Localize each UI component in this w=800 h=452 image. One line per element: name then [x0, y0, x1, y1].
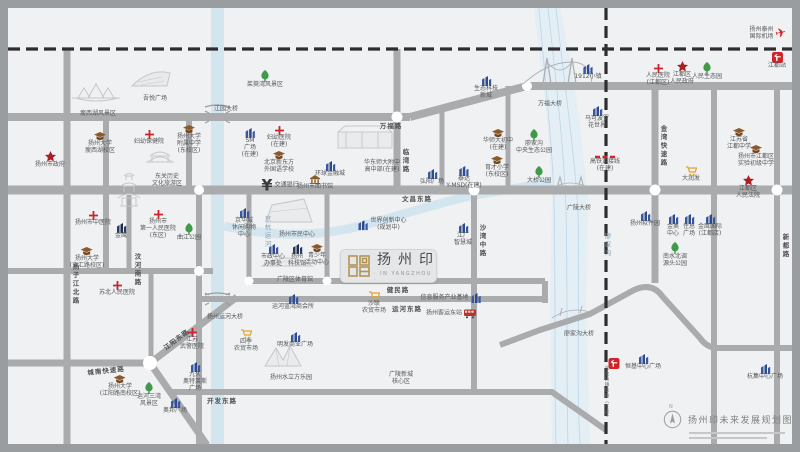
- poi-malldark: 金鹰: [115, 223, 127, 240]
- poi-label: 华东师大附中高中部(在建): [364, 160, 400, 174]
- poi-plane: 扬州泰州国际机场✈: [750, 27, 787, 41]
- poi-cart: 大润发: [682, 166, 700, 183]
- poi-school: 华师大初中(在建): [483, 129, 513, 152]
- poi-school: 育才小学(东校区): [485, 156, 509, 179]
- poi-cart: 四季农贸市场: [234, 329, 258, 353]
- poi-label: 扬州市图书馆: [297, 184, 333, 191]
- poi-label: 1912小镇: [574, 74, 601, 81]
- poi-bank: ¥交通银行: [261, 183, 298, 190]
- bus-icon: [464, 310, 476, 319]
- road-label: 汶河南路: [132, 253, 142, 287]
- road-label: 金湾快速路: [658, 125, 668, 168]
- poi-mall: 九久奥特莱斯广场: [183, 362, 207, 392]
- poi-mall: 杭集中心广场: [747, 364, 783, 381]
- planning-map: 妇幼保健院妇幼医院(在建)扬州市中医院扬州市第一人民医院(东区)苏北人民医院江苏…: [0, 0, 800, 452]
- poi-park: 茱萸湾风景区: [247, 70, 283, 89]
- map-canvas: 妇幼保健院妇幼医院(在建)扬州市中医院扬州市第一人民医院(东区)苏北人民医院江苏…: [0, 0, 800, 452]
- poi-hospital: 苏北人民医院: [99, 281, 135, 297]
- project-logo-card: 扬州印 · IN YANGZHOU ·: [340, 249, 437, 283]
- poi-label: 智慧城: [454, 240, 472, 247]
- poi-school: 扬州大学附属中学(东校区): [177, 125, 201, 154]
- poi-label: (江都店): [698, 231, 722, 238]
- poi-cart: 沙联农贸市场: [362, 291, 386, 315]
- poi-label: 办事处: [261, 261, 285, 268]
- poi-label: (东校区): [177, 148, 201, 155]
- road-label: 文昌东路: [402, 193, 432, 203]
- poi-label: 广场: [183, 386, 207, 393]
- poi-label: 中央生态公园: [516, 148, 552, 155]
- yangzhou-yin-logo-icon: [348, 255, 370, 277]
- poi-label: (东校区): [485, 172, 509, 179]
- compass-icon: N: [663, 410, 682, 429]
- road-label: 临湾路: [400, 148, 410, 174]
- poi-label: 人民政府: [670, 79, 694, 86]
- poi-label: 外国语学校: [264, 167, 294, 174]
- poi-school: 扬州大学瘦西湖校区: [85, 132, 115, 155]
- poi-mall: 泰达Y-MSD(在建): [446, 166, 481, 190]
- poi-label: 扬州水立方乐园: [270, 375, 312, 382]
- poi-label: (在建): [483, 145, 513, 152]
- poi-park: 大桥公园: [527, 166, 551, 185]
- poi-label: 广陵新城核心区: [389, 372, 413, 386]
- poi-label: 活动中心: [305, 260, 329, 267]
- poi-label: Y-MSD(在建): [446, 183, 481, 190]
- poi-label: (规划中): [370, 225, 406, 232]
- road-label: 沙湾中路: [477, 224, 487, 258]
- poi-label: 源头公园: [663, 261, 687, 268]
- poi-label: 人民法院: [736, 193, 760, 200]
- waterway-label: 京杭运河: [262, 215, 272, 249]
- poi-label: 扬州市政府: [35, 162, 65, 169]
- poi-school: 扬州大学(江阳路南校区): [100, 375, 141, 398]
- bridge-label: 万福大桥: [538, 99, 562, 108]
- poi-mall: 扬州软件园: [630, 211, 660, 228]
- map-legend: N 扬州印未来发展规划图: [663, 410, 800, 439]
- poi-label: 奥邦广场: [163, 408, 187, 415]
- poi-mall: 信息服务产业基地: [420, 293, 481, 303]
- poi-label: 茱萸湾风景区: [247, 82, 283, 89]
- legend-disclaimer-line: [689, 437, 767, 439]
- poi-mall: 环球金融城: [315, 161, 345, 178]
- poi-mall: 世界创新中心(规划中): [357, 218, 406, 232]
- poi-label: 花世界: [585, 123, 609, 130]
- poi-gov: 江都区人民法院: [736, 175, 760, 200]
- legend-disclaimer-line: [689, 432, 785, 434]
- poi-label: (江都区): [646, 80, 670, 87]
- poi-park: 曲江公园: [177, 223, 201, 242]
- poi-hospital: 妇幼保健院: [134, 130, 164, 146]
- poi-label: 大桥公园: [527, 178, 551, 185]
- poi-park: 运河三湾风景区: [137, 382, 161, 408]
- poi-label: 风景区: [137, 401, 161, 408]
- poi-hospital: 扬州市第一人民医院(东区): [140, 210, 176, 239]
- poi-school: 青少年活动中心: [305, 244, 329, 267]
- railway-station-icon: [609, 358, 620, 369]
- road-label: 扬子江北路: [70, 263, 80, 306]
- poi-label: 中心: [667, 231, 679, 238]
- poi-label: 广场: [683, 231, 695, 238]
- project-subtitle: · IN YANGZHOU ·: [374, 271, 436, 283]
- poi-raillogo: [609, 358, 620, 369]
- poi-label: 瘦西湖风景区: [80, 111, 116, 118]
- poi-school: 扬州市江都区实验初级中学: [738, 145, 774, 168]
- bridge-label: 廖家沟大桥: [564, 329, 594, 338]
- poi-label: 实验初级中学: [738, 161, 774, 168]
- road-label: 运河东路: [392, 303, 422, 313]
- poi-label: 大润发: [682, 176, 700, 183]
- poi-mall: 奥邦广场: [163, 398, 187, 415]
- poi-label: 江都站: [768, 63, 786, 70]
- poi-label: 科技馆: [288, 261, 306, 268]
- project-name: 扬州印: [377, 249, 440, 269]
- poi-label: 扬州客运东站: [426, 311, 462, 318]
- poi-mall: 京华城休闲购物中心: [232, 208, 256, 238]
- poi-gov: 扬州市政府: [35, 151, 65, 169]
- poi-label: 交通银行: [275, 183, 299, 190]
- building-icon: [471, 293, 482, 303]
- poi-label: 新城: [474, 93, 498, 100]
- poi-label: 苏北人民医院: [99, 290, 135, 297]
- poi-label: (在建): [242, 152, 259, 159]
- poi-label: 广陵区体育馆: [277, 277, 313, 284]
- poi-school: 北京新东方外国语学校: [264, 151, 294, 174]
- poi-label: 扬州市中医院: [75, 220, 111, 227]
- poi-label: 弘阳广场: [420, 179, 444, 186]
- poi-label: (东区): [140, 233, 176, 240]
- poi-mall: 弘阳广场: [420, 169, 444, 186]
- poi-label: 吾悦广场: [143, 96, 167, 103]
- poi-malldark: 扬州科技馆: [288, 244, 306, 268]
- poi-park: 廖家沟中央生态公园: [516, 129, 552, 155]
- poi-mall: 住总广场: [683, 214, 695, 238]
- poi-label: 环球金融城: [315, 171, 345, 178]
- poi-label: 核心区: [389, 379, 413, 386]
- poi-label: (江阳路南校区): [100, 391, 141, 398]
- poi-gov: 江都区人民政府: [670, 61, 694, 86]
- poi-raillogo: 江都站: [768, 52, 786, 70]
- poi-label: (在建): [590, 166, 620, 173]
- poi-label: 扬州市民中心: [279, 232, 315, 239]
- poi-hospital: 扬州市中医院: [75, 211, 111, 227]
- poi-label: 东关历史文化旅游区: [152, 174, 182, 188]
- poi-label: 武警医院: [180, 344, 204, 351]
- legend-title: 扬州印未来发展规划图: [688, 413, 793, 426]
- poi-park: 人民生态园: [692, 62, 722, 81]
- poi-label: 运河蓝湾商会所: [272, 304, 314, 311]
- poi-label: 中心: [232, 232, 256, 239]
- bridge-label: 广陵大桥: [567, 203, 591, 212]
- poi-label: 扬州市民中心: [279, 232, 315, 239]
- poi-bus: 扬州客运东站: [426, 310, 476, 319]
- road-label: 万福路: [380, 120, 403, 130]
- poi-mall: 江广智慧城: [454, 223, 472, 247]
- poi-label: 农贸市场: [234, 346, 258, 353]
- poi-mall: 恒基中心广场: [625, 354, 661, 371]
- map-labels-layer: 妇幼保健院妇幼医院(在建)扬州市中医院扬州市第一人民医院(东区)苏北人民医院江苏…: [8, 8, 800, 452]
- poi-mall: 马可波罗花世界: [585, 106, 609, 130]
- building-icon: [357, 220, 368, 230]
- poi-label: 明发商业广场: [277, 342, 313, 349]
- bridge-label: 江园大桥: [214, 104, 238, 113]
- poi-label: 文化旅游区: [152, 181, 182, 188]
- poi-redline: 高铁连接线(在建): [590, 155, 620, 173]
- poi-label: 国际机场: [750, 34, 774, 41]
- poi-mall: 金鹰国际(江都店): [698, 214, 722, 238]
- poi-label: 金鹰: [115, 233, 127, 240]
- poi-label: 吾悦广场: [143, 96, 167, 103]
- poi-mall: 生态科技新城: [474, 76, 498, 100]
- poi-mall: 1912小镇: [574, 64, 601, 81]
- poi-hospital: 妇幼医院(在建): [267, 126, 291, 149]
- poi-mall: SM广场(在建): [242, 128, 259, 158]
- poi-mall: 运河蓝湾商会所: [272, 294, 314, 311]
- poi-label: 瘦西湖风景区: [80, 111, 116, 118]
- poi-label: (在建): [267, 142, 291, 149]
- road-label: 健民路: [387, 284, 410, 294]
- poi-mall: 明发商业广场: [277, 332, 313, 349]
- poi-label: 杭集中心广场: [747, 374, 783, 381]
- poi-label: 农贸市场: [362, 308, 386, 315]
- waterway-label: 廖家沟: [602, 232, 612, 258]
- poi-label: 曲江公园: [177, 235, 201, 242]
- poi-label: 妇幼保健院: [134, 139, 164, 146]
- poi-park: 南水北调源头公园: [663, 242, 687, 268]
- poi-label: 扬州水立方乐园: [270, 375, 312, 382]
- poi-mall: 金奥中心: [667, 214, 679, 238]
- poi-label: 人民生态园: [692, 74, 722, 81]
- poi-hospital: 人民医院(江都区): [646, 64, 670, 87]
- poi-label: 瘦西湖校区: [85, 148, 115, 155]
- poi-label: 恒基中心广场: [625, 364, 661, 371]
- poi-label: 广陵区体育馆: [277, 277, 313, 284]
- road-label: 新都路: [780, 233, 790, 259]
- railway-label: 连淮扬镇铁路（在建）: [603, 366, 609, 421]
- poi-label: 信息服务产业基地: [420, 295, 468, 302]
- bridge-label: 扬州运河大桥: [207, 312, 243, 321]
- road-label: 开发东路: [207, 395, 237, 405]
- poi-label: 扬州软件园: [630, 221, 660, 228]
- poi-label: 高中部(在建): [364, 167, 400, 174]
